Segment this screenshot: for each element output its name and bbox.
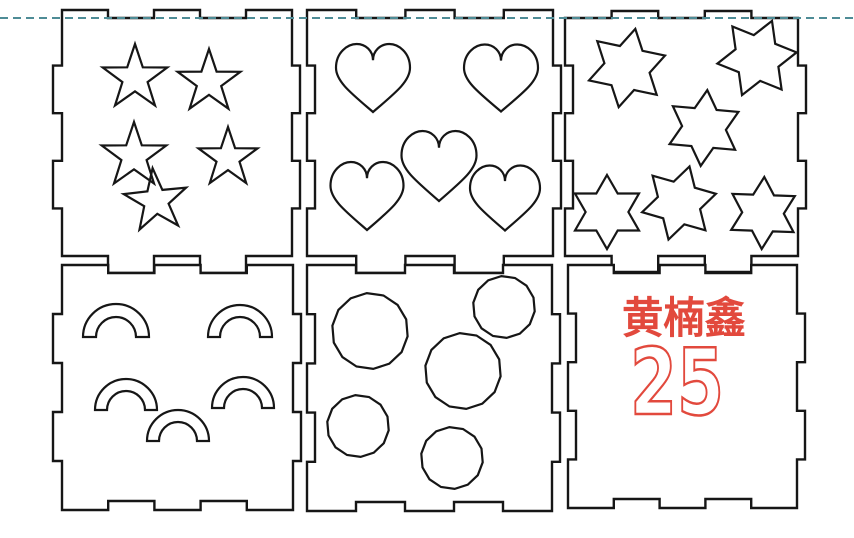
plate-arcs-outline xyxy=(53,265,301,510)
plate-stars-5pt[interactable] xyxy=(53,10,300,273)
design-canvas: 黄楠鑫 25 xyxy=(0,0,854,538)
plate-stars-6pt[interactable] xyxy=(565,11,806,272)
laser-cut-layout: 黄楠鑫 25 xyxy=(0,0,854,538)
plate-arcs[interactable] xyxy=(53,265,301,510)
plate-hearts[interactable] xyxy=(307,10,561,273)
plate-number-text[interactable]: 25 xyxy=(630,329,724,436)
plate-circles[interactable] xyxy=(307,265,560,511)
plate-stars-5pt-outline xyxy=(53,10,300,273)
plate-circles-outline xyxy=(307,265,560,511)
